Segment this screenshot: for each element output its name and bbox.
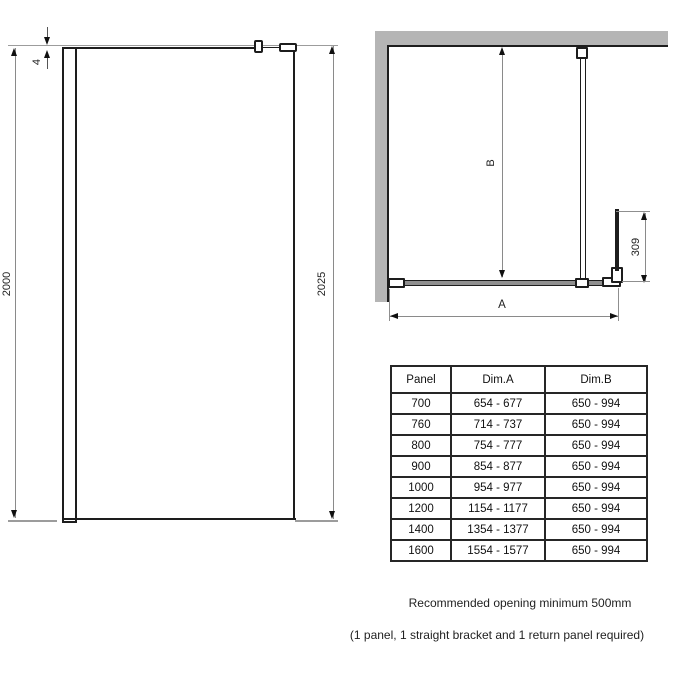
cell-panel: 760 [391, 414, 451, 435]
cell-panel: 800 [391, 435, 451, 456]
glass-top-edge [62, 47, 257, 49]
size-table-header-row: Panel Dim.A Dim.B [391, 366, 647, 393]
dim-b-arrow-top [499, 47, 505, 55]
dim-4-arrow-down [44, 37, 50, 45]
dim-2025-line [333, 46, 334, 519]
dim-b-line [502, 49, 503, 277]
note-recommended-opening: Recommended opening minimum 500mm [370, 596, 670, 610]
dim-a-arrow-right [610, 313, 618, 319]
dim-4-label: 4 [30, 40, 44, 84]
glass-right-edge [293, 50, 295, 518]
cell-panel: 700 [391, 393, 451, 414]
table-row: 700 654 - 677 650 - 994 [391, 393, 647, 414]
dim-2025-arrow-top [329, 46, 335, 54]
cell-panel: 1400 [391, 519, 451, 540]
return-panel-plan [615, 209, 619, 271]
technical-drawing-sheet: 4 2000 2025 [0, 0, 675, 675]
cell-dim-b: 650 - 994 [545, 477, 647, 498]
cell-dim-a: 654 - 677 [451, 393, 545, 414]
glass-bottom-edge [62, 518, 296, 520]
dim-4-arrow-up [44, 50, 50, 58]
cell-panel: 900 [391, 456, 451, 477]
dim-a-extension-right [618, 288, 619, 321]
wall-top-inner-edge [388, 45, 669, 47]
table-row: 1000 954 - 977 650 - 994 [391, 477, 647, 498]
dim-2025-label: 2025 [315, 262, 329, 306]
note-parts-required: (1 panel, 1 straight bracket and 1 retur… [307, 628, 675, 642]
dim-4-leader-bottom [47, 58, 48, 69]
cell-panel: 1000 [391, 477, 451, 498]
brace-wall-bracket [576, 47, 588, 59]
table-row: 760 714 - 737 650 - 994 [391, 414, 647, 435]
cell-dim-a: 854 - 877 [451, 456, 545, 477]
dim-2000-label: 2000 [0, 262, 14, 306]
table-row: 900 854 - 877 650 - 994 [391, 456, 647, 477]
cell-dim-a: 754 - 777 [451, 435, 545, 456]
dim-2000-arrow-bottom [11, 510, 17, 518]
cell-dim-b: 650 - 994 [545, 519, 647, 540]
cell-dim-b: 650 - 994 [545, 435, 647, 456]
brace-foot-bracket-plan [575, 278, 589, 288]
front-bottom-extension-right [295, 520, 338, 522]
size-table: Panel Dim.A Dim.B 700 654 - 677 650 - 99… [390, 365, 648, 562]
panel-wall-bracket-plan [388, 278, 405, 288]
cell-panel: 1200 [391, 498, 451, 519]
dim-a-arrow-left [390, 313, 398, 319]
dim-a-line [390, 316, 618, 317]
cell-dim-a: 1354 - 1377 [451, 519, 545, 540]
table-row: 800 754 - 777 650 - 994 [391, 435, 647, 456]
wall-profile-bottom-cap [62, 521, 77, 523]
cell-dim-a: 954 - 977 [451, 477, 545, 498]
dim-b-label: B [484, 141, 498, 185]
header-panel: Panel [391, 366, 451, 393]
dim-2025-arrow-bottom [329, 511, 335, 519]
cell-dim-b: 650 - 994 [545, 498, 647, 519]
cell-dim-b: 650 - 994 [545, 456, 647, 477]
cell-dim-b: 650 - 994 [545, 393, 647, 414]
wall-profile-right-line [75, 47, 77, 523]
header-dim-a: Dim.A [451, 366, 545, 393]
dim-309-line [645, 213, 646, 282]
cell-panel: 1600 [391, 540, 451, 561]
dim-309-arrow-top [641, 212, 647, 220]
dim-b-arrow-bottom [499, 270, 505, 278]
brace-bar-line-left [580, 59, 582, 280]
cell-dim-b: 650 - 994 [545, 414, 647, 435]
cell-dim-a: 1154 - 1177 [451, 498, 545, 519]
wall-left-inner-edge [387, 45, 389, 302]
dim-2000-line [15, 48, 16, 518]
table-row: 1600 1554 - 1577 650 - 994 [391, 540, 647, 561]
dim-a-label: A [482, 299, 522, 311]
cell-dim-a: 714 - 737 [451, 414, 545, 435]
wall-profile-left-line [62, 47, 64, 523]
table-row: 1400 1354 - 1377 650 - 994 [391, 519, 647, 540]
table-row: 1200 1154 - 1177 650 - 994 [391, 498, 647, 519]
wall-bracket-front [254, 40, 263, 53]
dim-309-label: 309 [629, 225, 643, 269]
front-bottom-extension-left [8, 520, 57, 522]
header-dim-b: Dim.B [545, 366, 647, 393]
brace-bar-line-right [585, 59, 587, 280]
dim-2000-arrow-top [11, 48, 17, 56]
wall-top-band [375, 31, 668, 45]
cell-dim-a: 1554 - 1577 [451, 540, 545, 561]
dim-309-extension-bottom [622, 281, 650, 282]
cell-dim-b: 650 - 994 [545, 540, 647, 561]
